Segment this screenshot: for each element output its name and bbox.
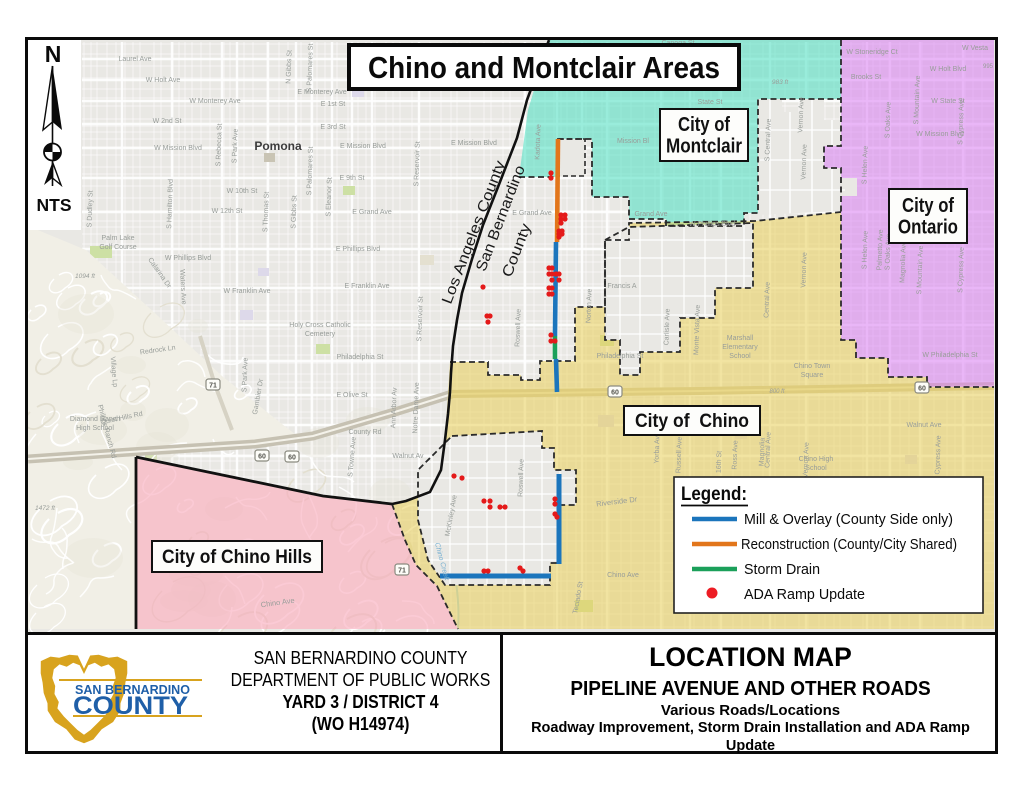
svg-text:Legend:: Legend: [681,483,747,505]
svg-text:City of Chino: City of Chino [635,410,749,432]
svg-text:Magnolia: Magnolia [759,438,767,467]
svg-text:Brooks St: Brooks St [851,74,881,81]
svg-text:Palmetto Ave: Palmetto Ave [876,229,884,270]
svg-text:W Holt Ave: W Holt Ave [146,77,181,84]
svg-text:Grand Ave: Grand Ave [635,211,668,218]
svg-text:W 2nd St: W 2nd St [153,118,182,125]
svg-text:W 12th St: W 12th St [212,208,243,215]
svg-text:Walnut Ave: Walnut Ave [906,422,941,429]
svg-text:E Grand Ave: E Grand Ave [512,210,552,217]
svg-text:Elementary: Elementary [722,344,758,351]
svg-text:Cypress Ave: Cypress Ave [934,435,942,474]
svg-text:1094 ft: 1094 ft [75,273,96,280]
svg-text:Mill & Overlay (County Side on: Mill & Overlay (County Side only) [744,512,953,528]
svg-text:Yorba Ave: Yorba Ave [653,432,661,464]
svg-text:Laurel Ave: Laurel Ave [119,56,152,63]
svg-text:S Dudley St: S Dudley St [86,190,94,227]
svg-text:E Olive St: E Olive St [336,392,367,399]
svg-text:Reconstruction (County/City Sh: Reconstruction (County/City Shared) [741,537,957,553]
svg-text:N Gibbs St: N Gibbs St [285,50,293,84]
svg-text:Norton Ave: Norton Ave [585,288,593,323]
svg-text:60: 60 [611,390,619,397]
svg-text:W Holt Blvd: W Holt Blvd [930,66,967,73]
svg-text:ADA Ramp Update: ADA Ramp Update [744,587,865,603]
svg-text:School: School [729,353,751,360]
svg-text:W Phillips Blvd: W Phillips Blvd [165,255,211,262]
svg-text:N: N [45,41,62,67]
svg-text:Francis A: Francis A [607,283,637,290]
svg-text:S Gibbs St: S Gibbs St [290,195,298,229]
svg-text:COUNTY: COUNTY [73,692,188,720]
svg-text:S Park Ave: S Park Ave [241,357,249,392]
svg-text:Vernon Ave: Vernon Ave [800,252,808,288]
svg-text:E Mission Blvd: E Mission Blvd [340,143,386,150]
svg-text:Vernon Ave: Vernon Ave [800,144,808,180]
svg-text:Holy Cross Catholic: Holy Cross Catholic [289,322,351,329]
svg-text:E 3rd St: E 3rd St [320,124,345,131]
svg-text:E Grand Ave: E Grand Ave [352,209,392,216]
svg-text:S Helen Ave: S Helen Ave [861,231,869,270]
svg-text:S Oaks Ave: S Oaks Ave [884,102,892,139]
svg-text:E Monterey Ave: E Monterey Ave [297,89,346,96]
svg-text:Palm Lake: Palm Lake [101,235,134,242]
svg-text:S Park Ave: S Park Ave [231,128,239,163]
svg-text:Ontario: Ontario [898,217,958,239]
svg-text:W Monterey Ave: W Monterey Ave [189,98,240,105]
svg-text:City of Chino Hills: City of Chino Hills [162,546,312,568]
svg-text:Montclair: Montclair [666,136,742,158]
svg-text:Vernon Ave: Vernon Ave [797,97,805,133]
svg-text:City of: City of [902,195,954,217]
svg-text:E 9th St: E 9th St [340,175,365,182]
svg-text:Ann Arbor Av: Ann Arbor Av [390,387,398,428]
svg-text:E 1st St: E 1st St [321,101,346,108]
svg-text:1472 ft: 1472 ft [35,505,56,512]
svg-text:Marshall: Marshall [727,335,754,342]
svg-text:Chino Ave: Chino Ave [607,572,639,579]
svg-text:W Philadelphia St: W Philadelphia St [922,352,977,359]
svg-text:S Eleanor St: S Eleanor St [325,177,333,217]
svg-text:W Franklin Ave: W Franklin Ave [224,288,271,295]
svg-text:City of: City of [678,114,730,136]
svg-text:60: 60 [258,454,266,461]
svg-text:S Rebecca St: S Rebecca St [215,123,223,166]
svg-text:S Helen Ave: S Helen Ave [861,146,869,185]
svg-text:W Mission Blvd: W Mission Blvd [154,145,202,152]
svg-text:Pomona: Pomona [254,139,302,153]
svg-text:S Thomas St: S Thomas St [262,192,270,233]
svg-text:W Phillips Blvd: W Phillips Blvd [689,221,735,228]
svg-text:Ross Ave: Ross Ave [731,440,739,470]
svg-text:60: 60 [288,455,296,462]
svg-text:Roswell Ave: Roswell Ave [517,459,525,497]
svg-text:Walnut Av: Walnut Av [392,453,424,460]
svg-text:W Vesta: W Vesta [962,45,988,52]
svg-text:71: 71 [398,568,406,575]
svg-text:Vernon Ave: Vernon Ave [802,442,810,478]
svg-text:County Rd: County Rd [348,429,381,436]
svg-text:Golf Course: Golf Course [99,244,136,251]
svg-text:60: 60 [918,386,926,393]
svg-text:Philadelphia St: Philadelphia St [337,354,384,361]
svg-text:S Central Ave: S Central Ave [764,118,772,161]
svg-text:Central Ave: Central Ave [763,282,771,318]
svg-text:NTS: NTS [37,195,72,215]
svg-text:983 ft: 983 ft [772,79,789,86]
svg-text:E Mission Blvd: E Mission Blvd [451,140,497,147]
svg-text:Russell Ave: Russell Ave [675,437,683,474]
svg-text:16th St: 16th St [716,451,724,473]
svg-text:Square: Square [801,372,824,379]
svg-text:W 10th St: W 10th St [227,188,258,195]
svg-text:E Phillips Blvd: E Phillips Blvd [336,246,380,253]
svg-text:Philadelphia St: Philadelphia St [597,353,644,360]
svg-text:Magnolia Ave: Magnolia Ave [899,241,907,283]
svg-text:E Franklin Ave: E Franklin Ave [344,283,389,290]
svg-text:Roswell Ave: Roswell Ave [514,309,522,347]
svg-text:Mission Bl: Mission Bl [617,138,649,145]
svg-text:Chino Town: Chino Town [794,363,831,370]
svg-text:800 ft: 800 ft [769,389,784,395]
svg-text:Carlisle Ave: Carlisle Ave [663,308,671,345]
svg-text:Kadota Ave: Kadota Ave [534,124,542,160]
svg-text:Cemetery: Cemetery [305,331,336,338]
svg-text:Storm Drain: Storm Drain [744,562,820,578]
svg-text:Chino and Montclair Areas: Chino and Montclair Areas [368,50,720,85]
svg-text:995: 995 [983,64,994,70]
svg-text:State St: State St [698,99,723,106]
svg-text:W Stoneridge Ct: W Stoneridge Ct [846,49,897,56]
svg-text:71: 71 [209,383,217,390]
